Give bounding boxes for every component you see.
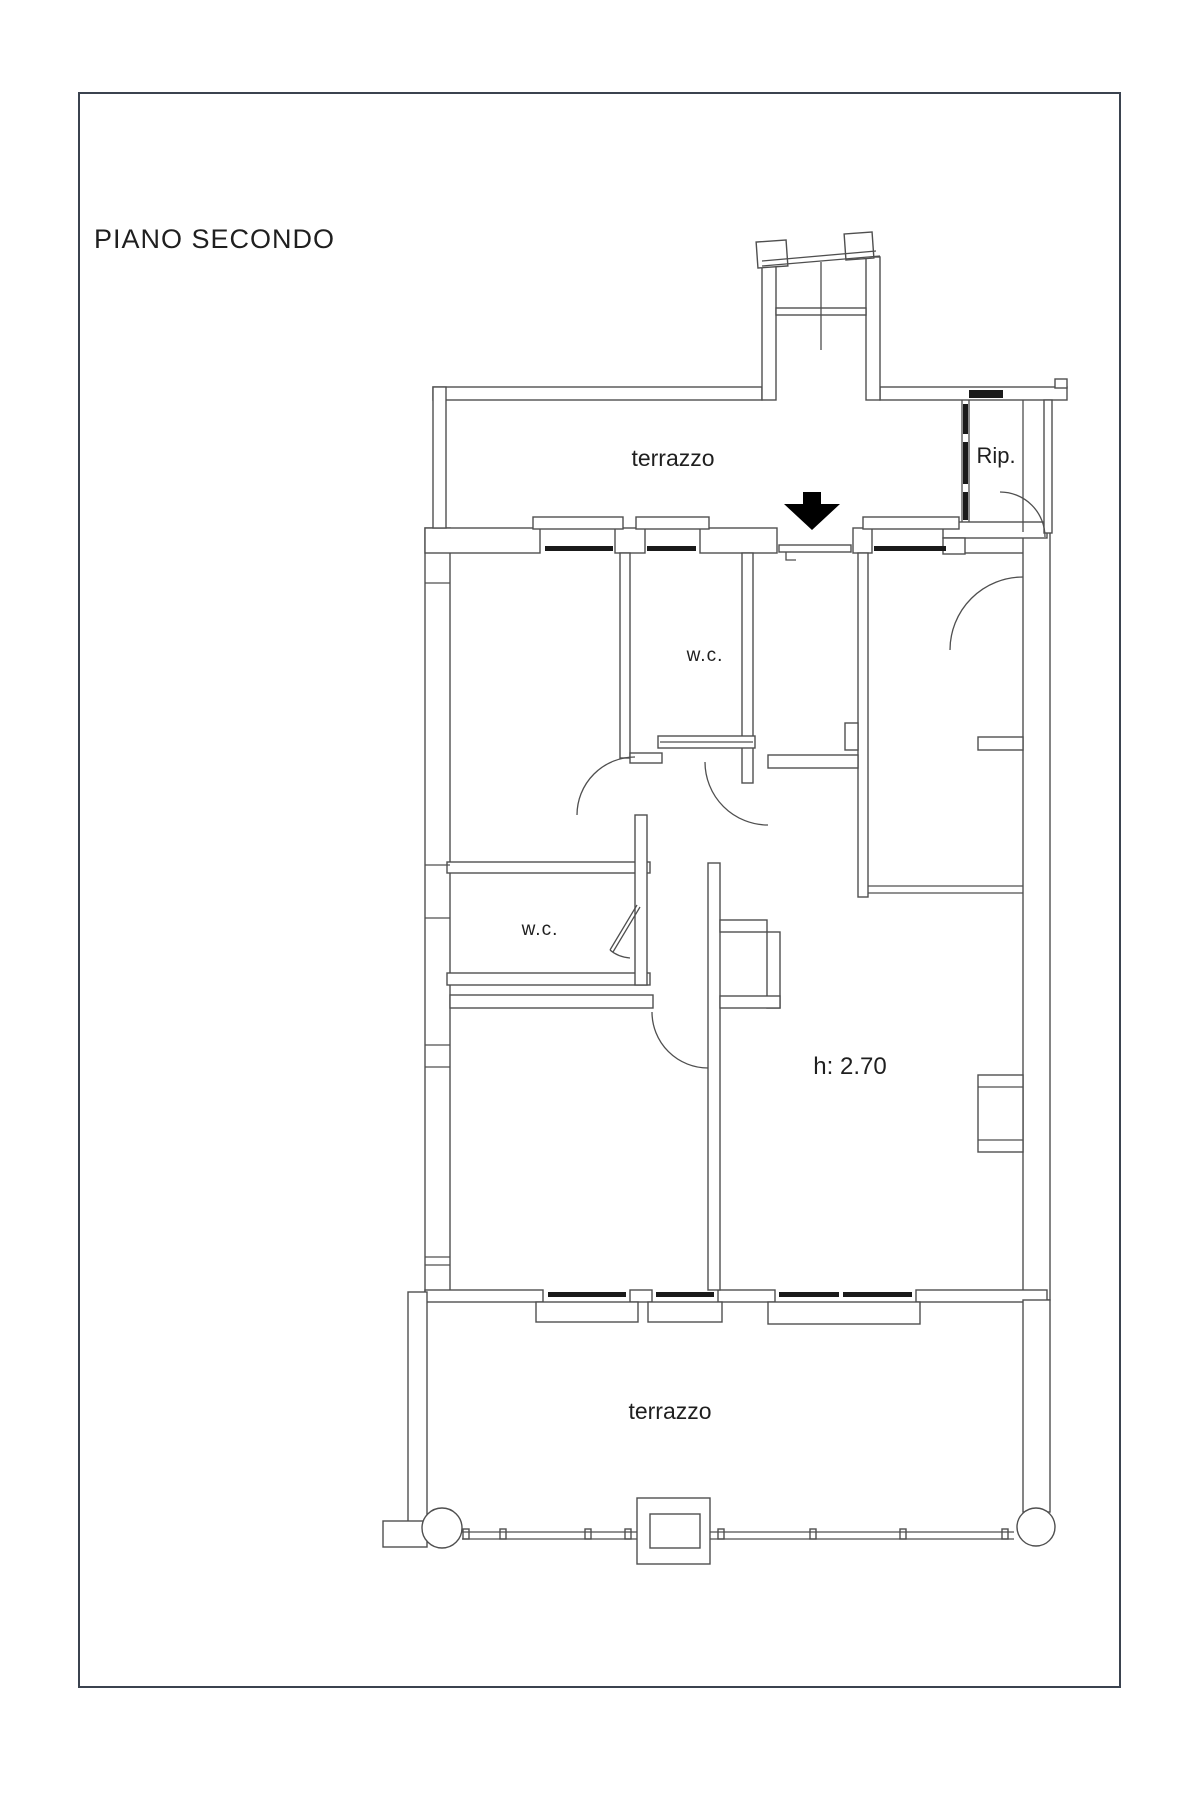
window-glass-line [843,1292,912,1297]
railing-post [900,1529,906,1539]
railing [462,1532,1014,1539]
door-arc [577,757,635,815]
window-sill [536,1302,638,1322]
wall-bottom-seg [718,1290,775,1302]
wall-wc1-bottom [630,753,662,763]
wall-top-seg [615,528,645,553]
label-ceiling-height: h: 2.70 [790,1054,910,1080]
wall-right [1023,532,1050,1300]
wall-bottom-seg [630,1290,652,1302]
wide-opening [868,886,1023,893]
wall-right-stub [978,737,1023,750]
wall-room1-bottom [447,862,650,873]
rip-door-glass [963,492,968,520]
terrace-column [1017,1508,1055,1546]
window-sill [863,517,959,529]
wall-living-top [768,755,858,768]
window-glass-line [779,1292,839,1297]
door-arc [950,577,1023,650]
railing-post [1002,1529,1008,1539]
window-sill [768,1302,920,1324]
terrace-top-wall [433,387,762,400]
terrace2-right-wall [1023,1300,1050,1512]
railing-post [625,1529,631,1539]
entrance-arrow [784,492,840,530]
wall-room3-top [450,995,653,1008]
wall-corridor-right [708,863,720,1290]
wall-top-seg [700,528,777,553]
entry-door-hook [786,552,796,560]
terrace2-left-wall [408,1292,427,1535]
label-wc-left: w.c. [495,920,585,941]
wall-left [425,528,450,1300]
window-glass-line [647,546,696,551]
window-sill [533,517,623,529]
wall-nook-bottom [720,996,780,1008]
terrace-left-wall [433,387,446,528]
rip-bottom-step [943,538,965,554]
entry-threshold [779,545,851,552]
window-glass-line [548,1292,626,1297]
railing-post [463,1529,469,1539]
wall-hall-bump [845,723,858,750]
railing-post [500,1529,506,1539]
footer-branding: Italy Sotheby’s INTERNATIONAL REALTY [0,1700,1200,1800]
window-glass-line [545,546,613,551]
floorplan-page: PIANO SECONDO [0,0,1200,1800]
railing-post [718,1529,724,1539]
railing-post [810,1529,816,1539]
door-arc [705,762,768,825]
window-sill [636,517,709,529]
wall-wc2-bottom [447,973,650,985]
stack-right-wall [866,257,880,400]
terrace-wall-notch [1055,379,1067,388]
terrace2-corner-block [383,1521,427,1547]
terrace-column [422,1508,462,1548]
label-terrace-bottom: terrazzo [595,1399,745,1424]
rip-outer-band [1044,400,1052,533]
wall-nook-top [720,920,767,932]
thin-lines [425,251,1045,1539]
wall-corridor-left [635,815,647,985]
wall-hall-right [858,553,868,897]
stack-cap [844,232,874,260]
wall-wc1-left [620,553,630,758]
label-wc-top: w.c. [660,646,750,667]
stack-left-wall [762,265,776,400]
window-glass-line [874,546,946,551]
window-sill [648,1302,722,1322]
door-arc [652,1012,708,1068]
planter-inner [650,1514,700,1548]
label-terrace-top: terrazzo [598,446,748,471]
rip-window-glass [969,390,1003,398]
rip-door-glass [963,404,968,434]
label-storage-room: Rip. [960,444,1032,468]
wall-top-seg [853,528,872,553]
window-glass-line [656,1292,714,1297]
wall-bottom-seg [425,1290,543,1302]
floorplan-drawing [0,0,1200,1800]
wall-top-seg [425,528,540,553]
railing-post [585,1529,591,1539]
